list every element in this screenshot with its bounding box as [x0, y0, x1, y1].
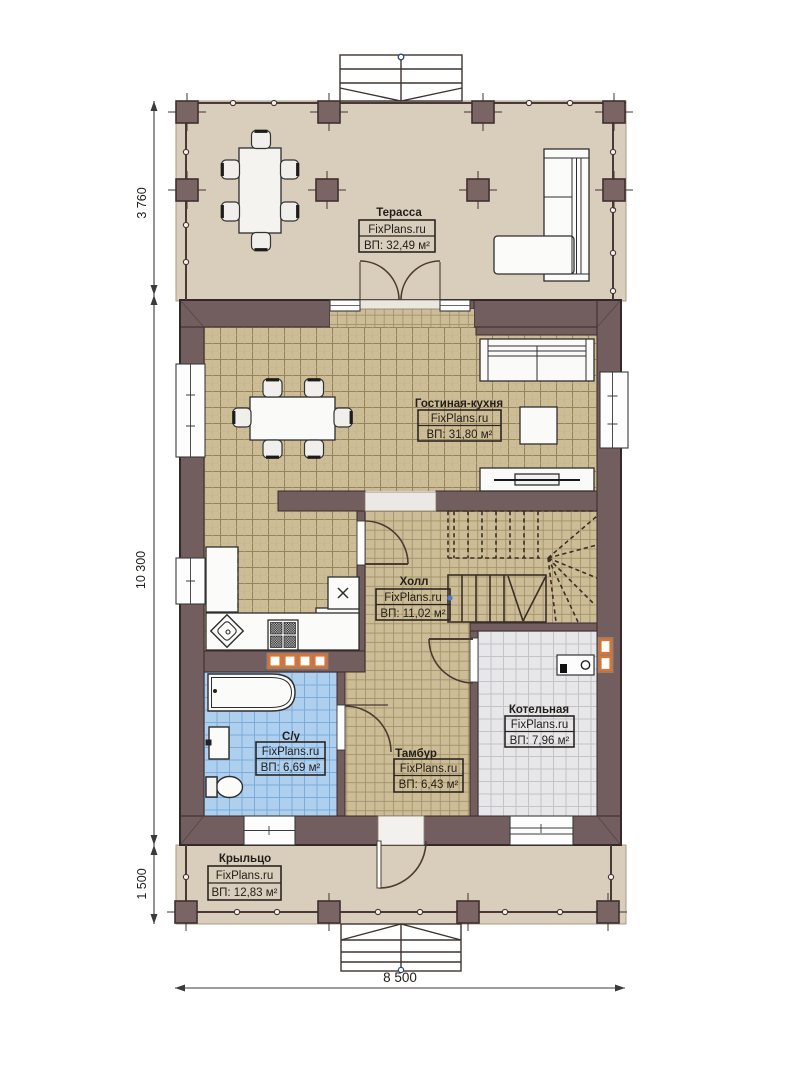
svg-text:ВП: 32,49 м²: ВП: 32,49 м² [364, 240, 430, 252]
svg-text:3 760: 3 760 [135, 187, 149, 218]
svg-text:ВП: 6,43 м²: ВП: 6,43 м² [399, 779, 459, 791]
svg-text:FixPlans.ru: FixPlans.ru [431, 413, 489, 425]
svg-text:Холл: Холл [400, 576, 429, 588]
svg-text:FixPlans.ru: FixPlans.ru [384, 592, 442, 604]
svg-text:1 500: 1 500 [135, 868, 149, 899]
svg-text:Гостиная-кухня: Гостиная-кухня [415, 398, 503, 410]
svg-text:FixPlans.ru: FixPlans.ru [262, 746, 320, 758]
svg-text:ВП: 11,02 м²: ВП: 11,02 м² [380, 608, 445, 620]
svg-text:Терасса: Терасса [376, 207, 422, 219]
svg-text:ВП: 12,83 м²: ВП: 12,83 м² [211, 887, 277, 899]
svg-text:ВП: 7,96 м²: ВП: 7,96 м² [510, 735, 570, 747]
svg-text:10 300: 10 300 [134, 551, 148, 589]
svg-text:FixPlans.ru: FixPlans.ru [216, 870, 274, 882]
svg-text:Крыльцо: Крыльцо [219, 853, 271, 865]
svg-text:ВП: 6,69 м²: ВП: 6,69 м² [261, 762, 321, 774]
svg-text:ВП: 31,80 м²: ВП: 31,80 м² [426, 429, 492, 441]
svg-text:FixPlans.ru: FixPlans.ru [368, 224, 426, 236]
svg-text:8 500: 8 500 [383, 970, 417, 985]
svg-text:FixPlans.ru: FixPlans.ru [400, 763, 458, 775]
svg-text:FixPlans.ru: FixPlans.ru [511, 719, 569, 731]
svg-text:Котельная: Котельная [509, 704, 569, 716]
